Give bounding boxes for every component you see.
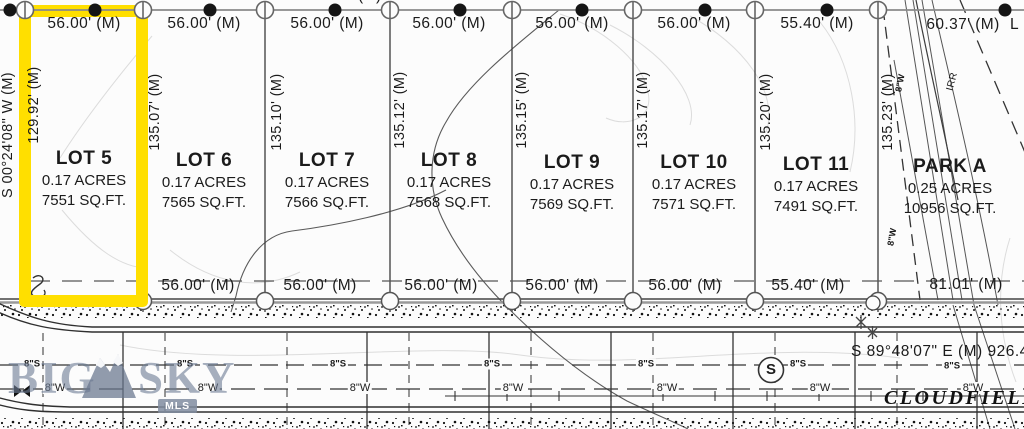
dimension-label: 81.01' (M) — [929, 276, 1002, 294]
utility-label-water: 8"W — [348, 382, 372, 394]
lot-acres: 0.17 ACRES — [530, 176, 614, 194]
plat-linework — [0, 0, 1024, 429]
utility-label-sewer: 8"S — [175, 359, 195, 370]
utility-label-sewer: 8"S — [788, 359, 808, 370]
utility-label-sewer: 8"S — [328, 359, 348, 370]
lot-name: LOT 11 — [774, 154, 858, 176]
lot-acres: 0.17 ACRES — [42, 172, 126, 190]
plat-map: S 89°48'48" E (M) 391.10' L 56.00' (M) 5… — [0, 0, 1024, 429]
dimension-label: 56.00' (M) — [648, 277, 721, 295]
dimension-label: 56.00' (M) — [47, 15, 120, 33]
sewer-manhole-label: S — [766, 361, 776, 378]
lot-label: LOT 8 0.17 ACRES 7568 SQ.FT. — [407, 150, 491, 212]
side-dimension-label: 135.07' (M) — [147, 73, 163, 150]
road-edge-lower — [0, 397, 1024, 412]
dimension-label: 55.40' (M) — [771, 277, 844, 295]
dimension-label: 56.00' (M) — [657, 15, 730, 33]
dimension-label: 56.00' (M) — [290, 15, 363, 33]
lot-sqft: 7565 SQ.FT. — [162, 194, 246, 212]
lot-sqft: 10956 SQ.FT. — [904, 200, 997, 218]
utility-label-sewer: 8"S — [482, 359, 502, 370]
lot-label: LOT 7 0.17 ACRES 7566 SQ.FT. — [285, 150, 369, 212]
lot-sqft: 7571 SQ.FT. — [652, 196, 736, 214]
lot-sqft: 7568 SQ.FT. — [407, 194, 491, 212]
lot-acres: 0.17 ACRES — [162, 174, 246, 192]
dimension-label: 56.00' (M) — [535, 15, 608, 33]
utility-label-sewer: 8"S — [942, 361, 962, 372]
side-dimension-label: 135.12' (M) — [392, 71, 408, 148]
lot-acres: 0.17 ACRES — [407, 174, 491, 192]
utility-label-water: 8"W — [43, 382, 67, 394]
dimension-label: 55.40' (M) — [780, 15, 853, 33]
lot-label: LOT 6 0.17 ACRES 7565 SQ.FT. — [162, 150, 246, 212]
dimension-label: 56.00' (M) — [161, 277, 234, 295]
side-dimension-label: 135.15' (M) — [514, 71, 530, 148]
lot-name: LOT 6 — [162, 150, 246, 172]
lot-acres: 0.17 ACRES — [774, 178, 858, 196]
dimension-label: 56.00' (M) — [404, 277, 477, 295]
side-dimension-label: 135.20' (M) — [758, 73, 774, 150]
lot-name: LOT 7 — [285, 150, 369, 172]
lot-label: LOT 5 0.17 ACRES 7551 SQ.FT. — [42, 148, 126, 210]
lot-sqft: 7551 SQ.FT. — [42, 192, 126, 210]
lot-sqft: 7569 SQ.FT. — [530, 196, 614, 214]
bottom-bearing-label: S 89°48'07" E (M) 926.45' — [851, 343, 1024, 361]
dimension-label: 56.00' (M) — [525, 277, 598, 295]
right-edge-clipped-text: L — [1010, 16, 1019, 34]
utility-label-water: 8"W — [501, 382, 525, 394]
lot-label: LOT 10 0.17 ACRES 7571 SQ.FT. — [652, 152, 736, 214]
utility-label-sewer: 8"S — [636, 359, 656, 370]
lot-name: PARK A — [904, 156, 997, 178]
lot-name: LOT 9 — [530, 152, 614, 174]
utility-label-sewer: 8"S — [22, 359, 42, 370]
side-dimension-label: 135.10' (M) — [269, 73, 285, 150]
lot-sqft: 7491 SQ.FT. — [774, 198, 858, 216]
lot-label: LOT 9 0.17 ACRES 7569 SQ.FT. — [530, 152, 614, 214]
lot-name: LOT 10 — [652, 152, 736, 174]
gravel-stipple-band-bottom — [0, 418, 1024, 429]
side-dimension-label: 135.17' (M) — [635, 71, 651, 148]
lot-sqft: 7566 SQ.FT. — [285, 194, 369, 212]
lot-acres: 0.17 ACRES — [652, 176, 736, 194]
lot-name: LOT 8 — [407, 150, 491, 172]
dimension-label: 56.00' (M) — [167, 15, 240, 33]
lot-label: PARK A 0.25 ACRES 10956 SQ.FT. — [904, 156, 997, 218]
contour-lines — [231, 10, 688, 429]
utility-label-water: 8"W — [655, 382, 679, 394]
top-monument-row — [0, 0, 1024, 28]
dimension-label: 56.00' (M) — [283, 277, 356, 295]
lot-acres: 0.25 ACRES — [904, 180, 997, 198]
street-name-label: CLOUDFIELD — [884, 387, 1024, 410]
side-dimension-label: 129.92' (M) — [26, 66, 42, 143]
top-bearing-clipped: S 89°48'48" E (M) 391.10' — [258, 0, 436, 5]
lot-name: LOT 5 — [42, 148, 126, 170]
lot-acres: 0.17 ACRES — [285, 174, 369, 192]
water-valve-icon — [14, 385, 30, 397]
left-bearing-label: S 00°24'08" W (M) — [0, 72, 16, 198]
utility-label-water: 8"W — [808, 382, 832, 394]
lot-label: LOT 11 0.17 ACRES 7491 SQ.FT. — [774, 154, 858, 216]
dimension-label: 60.37' (M) — [926, 16, 999, 34]
utility-label-water: 8"W — [196, 382, 220, 394]
dimension-label: 56.00' (M) — [412, 15, 485, 33]
